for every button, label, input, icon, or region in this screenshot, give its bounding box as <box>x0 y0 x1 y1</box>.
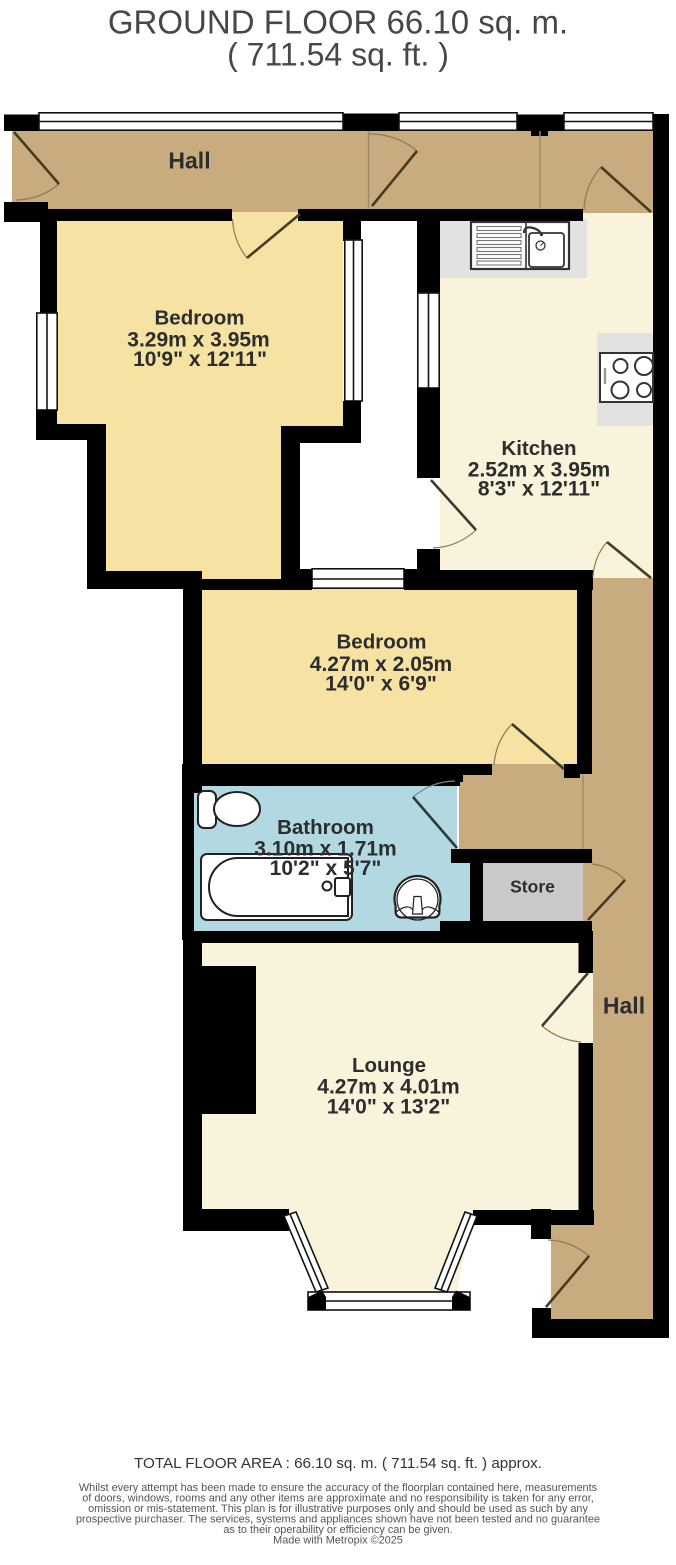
svg-text:10'9" x 12'11": 10'9" x 12'11" <box>133 348 267 371</box>
svg-text:GROUND FLOOR 66.10 sq. m.: GROUND FLOOR 66.10 sq. m. <box>108 4 568 41</box>
svg-text:Lounge: Lounge <box>352 1054 426 1077</box>
svg-text:8'3" x 12'11": 8'3" x 12'11" <box>478 478 600 501</box>
svg-text:Made with Metropix ©2025: Made with Metropix ©2025 <box>273 1535 403 1547</box>
svg-text:Bathroom: Bathroom <box>277 816 374 839</box>
svg-text:10'2" x 5'7": 10'2" x 5'7" <box>270 857 382 880</box>
svg-text:( 711.54 sq. ft. ): ( 711.54 sq. ft. ) <box>227 37 449 73</box>
svg-text:TOTAL FLOOR AREA : 66.10 sq. m: TOTAL FLOOR AREA : 66.10 sq. m. ( 711.54… <box>134 1455 542 1472</box>
svg-text:Bedroom: Bedroom <box>155 307 245 330</box>
svg-text:14'0" x 6'9": 14'0" x 6'9" <box>325 673 437 696</box>
svg-text:Hall: Hall <box>168 148 210 174</box>
svg-text:14'0" x 13'2": 14'0" x 13'2" <box>327 1096 450 1119</box>
svg-text:Kitchen: Kitchen <box>501 437 576 460</box>
svg-text:Store: Store <box>510 877 555 897</box>
svg-text:Bedroom: Bedroom <box>337 631 427 654</box>
svg-text:Hall: Hall <box>603 993 645 1019</box>
